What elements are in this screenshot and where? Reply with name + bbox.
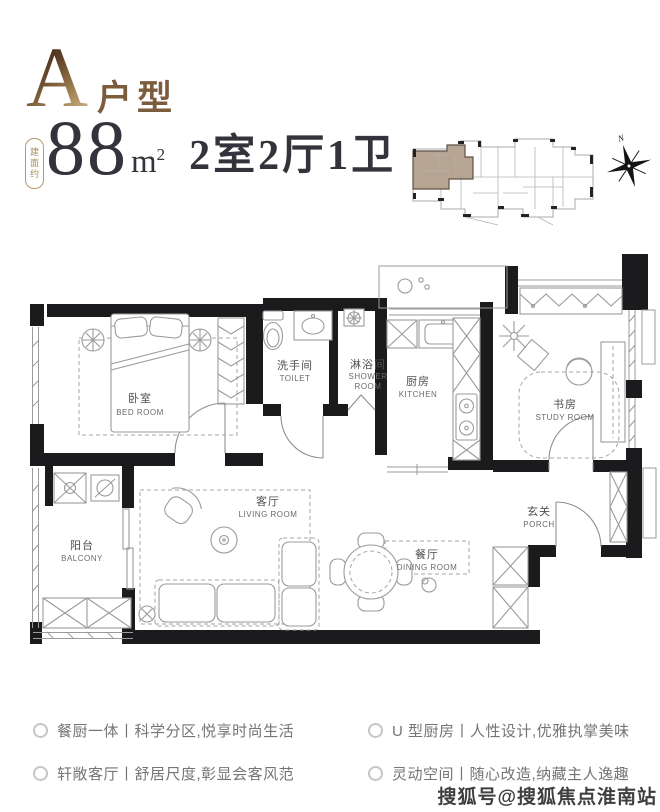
room-label-shower: 淋浴间 xyxy=(350,358,386,371)
floorplan-page: { "header": { "unit_letter": "A", "unit_… xyxy=(0,0,660,812)
kitchen-furniture xyxy=(387,278,480,460)
svg-text:BED ROOM: BED ROOM xyxy=(116,408,164,417)
bullet-icon xyxy=(33,723,48,738)
area-value: 88 xyxy=(46,112,128,184)
svg-text:LIVING ROOM: LIVING ROOM xyxy=(239,510,298,519)
north-label: N xyxy=(616,132,626,144)
svg-text:KITCHEN: KITCHEN xyxy=(399,390,438,399)
room-label-toilet: 洗手间 xyxy=(277,358,313,372)
svg-text:BALCONY: BALCONY xyxy=(61,554,103,563)
svg-text:SHOWER: SHOWER xyxy=(349,372,388,381)
feature-item: 轩敞客厅丨舒居尺度,彰显会客风范 xyxy=(33,763,294,784)
room-label-study: 书房 xyxy=(553,398,577,411)
shower-fixtures xyxy=(344,309,364,326)
compass-icon: N xyxy=(600,128,658,192)
area-row: 88 m2 2室2厅1卫 xyxy=(46,112,396,184)
room-label-living: 客厅 xyxy=(256,494,280,508)
svg-text:ROOM: ROOM xyxy=(355,382,382,391)
bullet-icon xyxy=(33,766,48,781)
room-label-dining: 餐厅 xyxy=(415,547,439,561)
svg-text:TOILET: TOILET xyxy=(280,374,311,383)
room-label-bedroom: 卧室 xyxy=(128,391,152,405)
bullet-icon xyxy=(368,766,383,781)
room-label-kitchen: 厨房 xyxy=(406,375,430,388)
room-label-balcony: 阳台 xyxy=(70,538,94,552)
bullet-icon xyxy=(368,723,383,738)
svg-text:STUDY ROOM: STUDY ROOM xyxy=(535,413,594,422)
toilet-fixtures xyxy=(263,311,332,350)
feature-item: 餐厨一体丨科学分区,悦享时尚生活 xyxy=(33,720,294,741)
floor-plan: 卧室 BED ROOM 洗手间 TOILET 淋浴间 SHOWER ROOM 厨… xyxy=(27,252,657,670)
svg-text:PORCH: PORCH xyxy=(523,520,554,529)
area-unit: m2 xyxy=(131,146,165,179)
key-plan xyxy=(403,127,603,237)
room-label-porch: 玄关 xyxy=(527,504,551,518)
feature-item: U 型厨房丨人性设计,优雅执掌美味 xyxy=(368,720,630,741)
living-furniture xyxy=(139,482,319,630)
watermark: 搜狐号@搜狐焦点淮南站 xyxy=(437,782,657,809)
svg-text:DINING ROOM: DINING ROOM xyxy=(397,563,458,572)
rooms-summary: 2室2厅1卫 xyxy=(189,121,396,182)
area-badge: 建面约 xyxy=(25,138,44,189)
feature-item: 灵动空间丨随心改造,纳藏主人逸趣 xyxy=(368,763,629,784)
dining-furniture xyxy=(330,533,469,611)
